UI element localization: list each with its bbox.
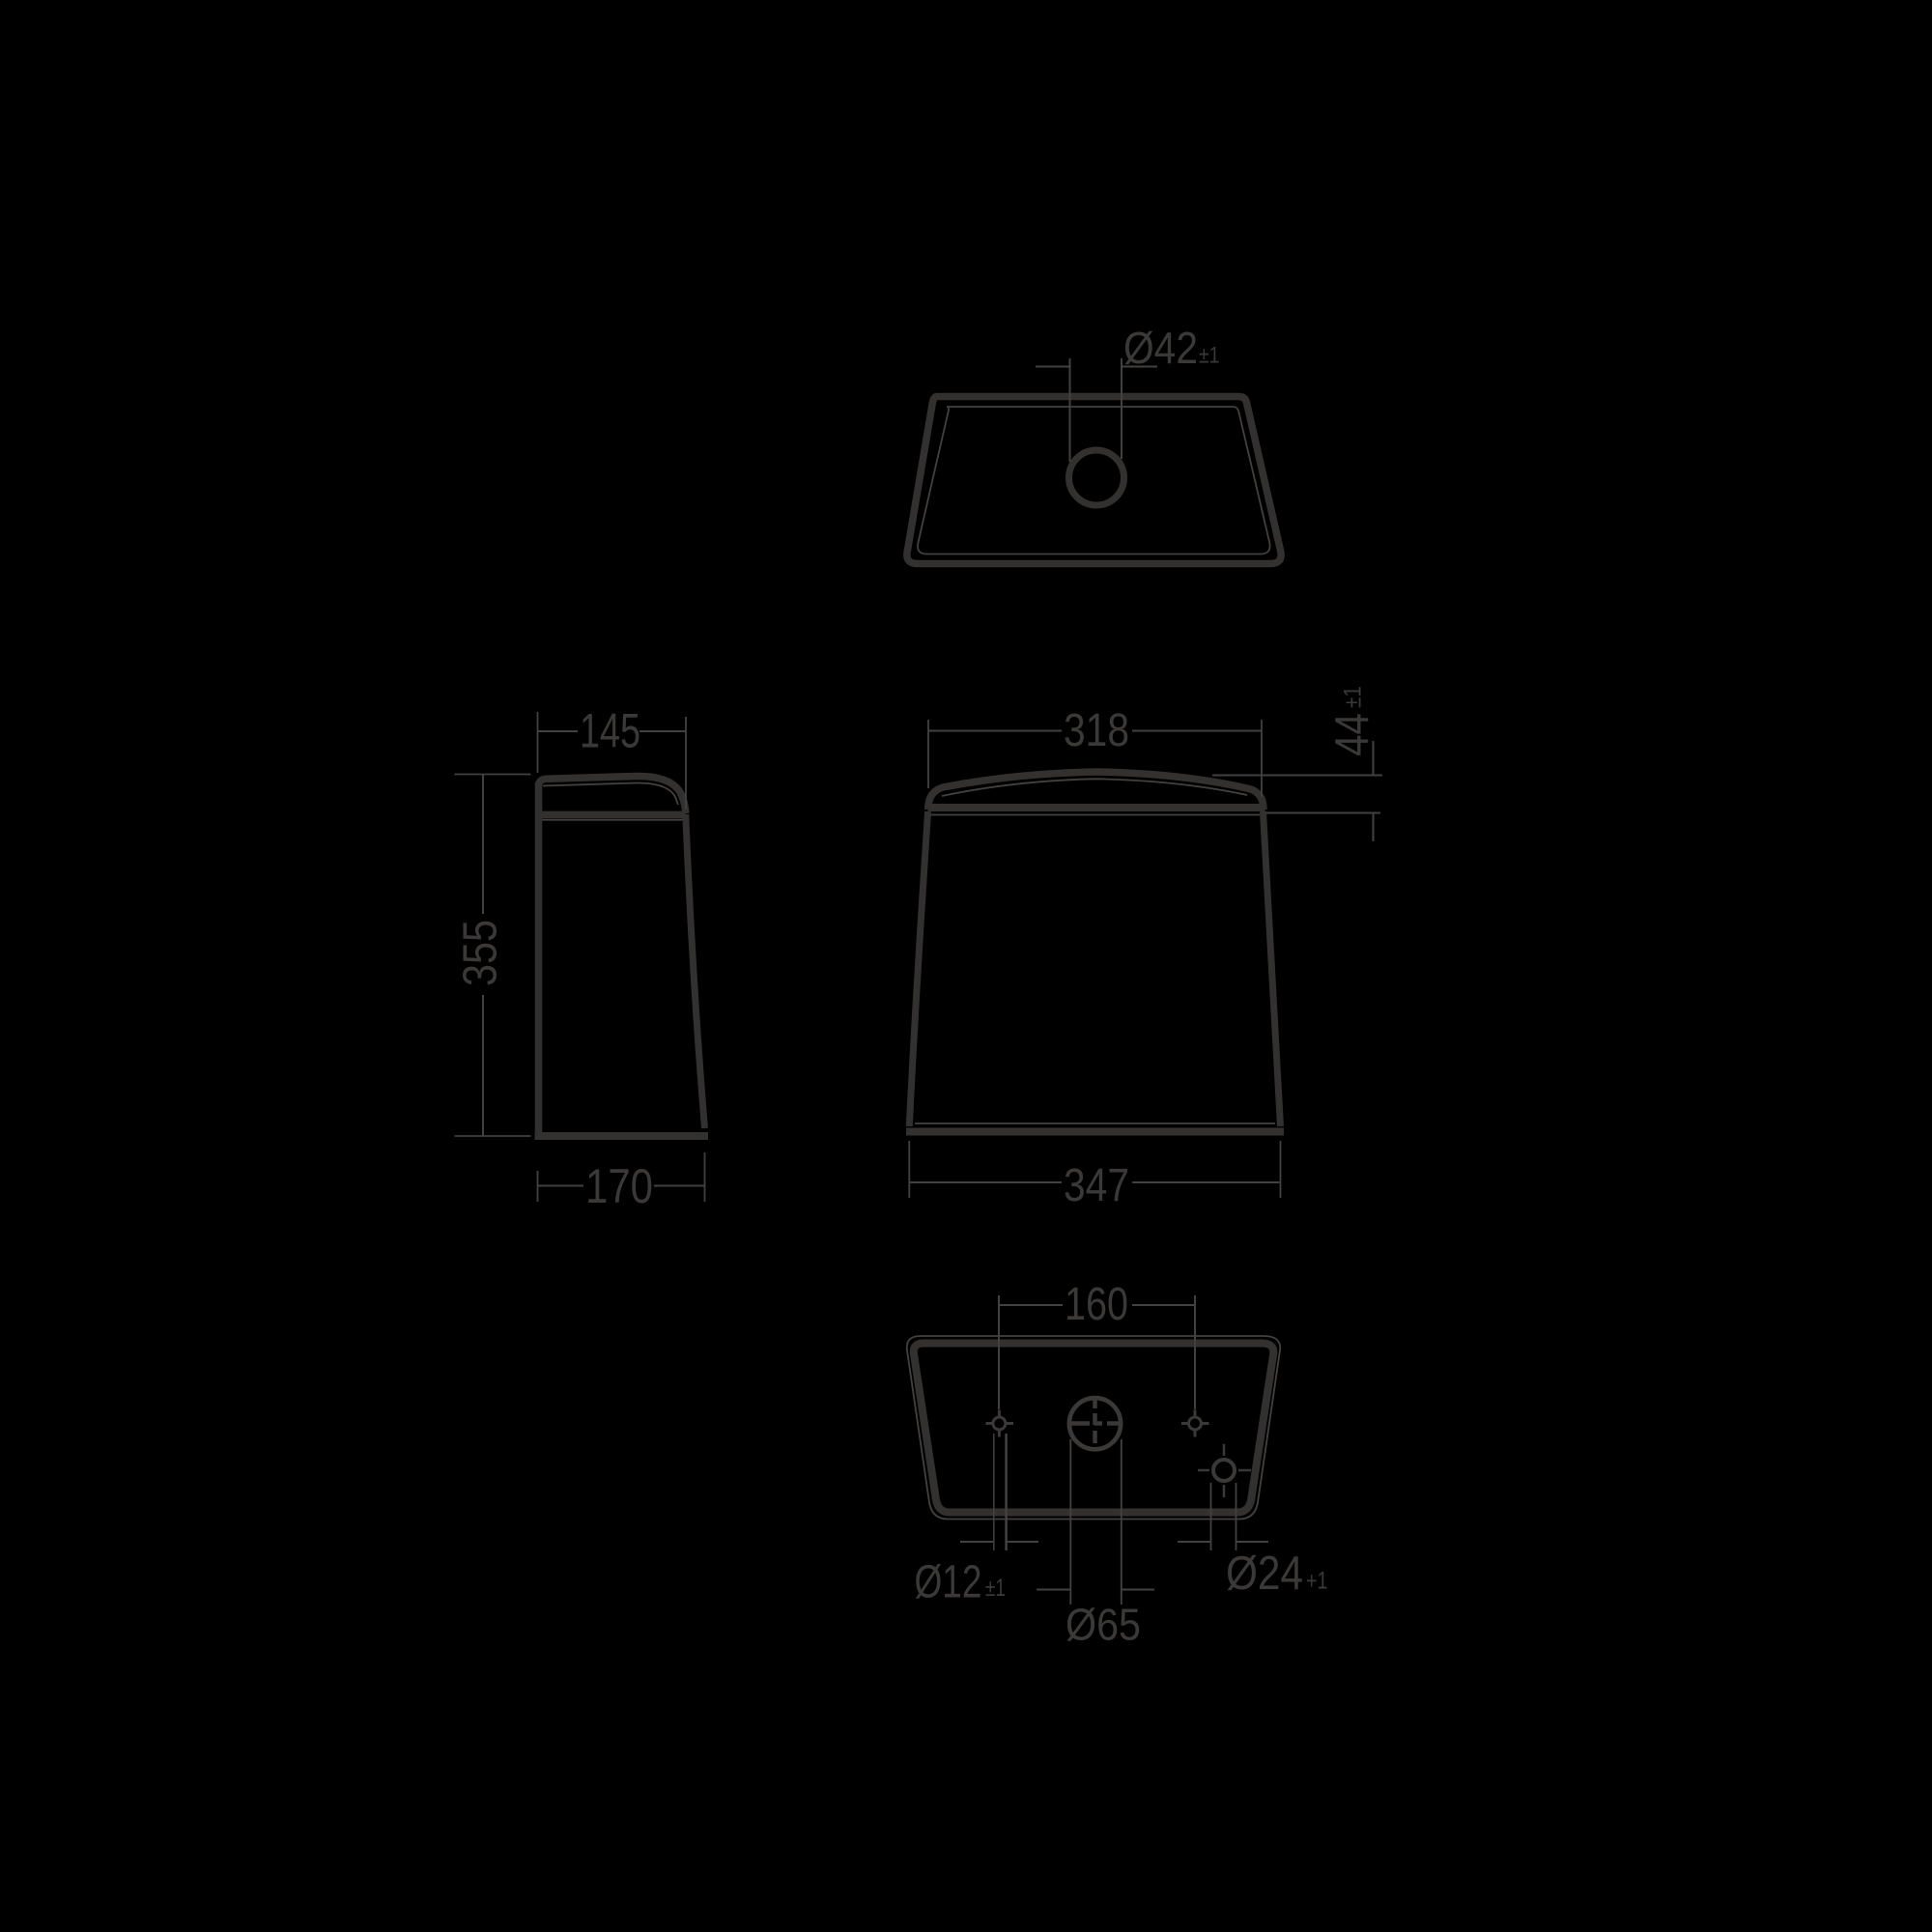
svg-text:355: 355 (455, 920, 507, 986)
svg-text:Ø65: Ø65 (1065, 1600, 1141, 1650)
svg-text:170: 170 (585, 1159, 653, 1213)
svg-text:Ø12: Ø12 (915, 1557, 982, 1608)
svg-text:Ø24: Ø24 (1226, 1548, 1303, 1600)
svg-text:160: 160 (1065, 1279, 1128, 1330)
svg-text:44: 44 (1326, 713, 1378, 756)
svg-text:318: 318 (1064, 705, 1129, 756)
svg-text:347: 347 (1064, 1160, 1129, 1211)
svg-text:Ø42: Ø42 (1123, 323, 1198, 373)
svg-text:±1: ±1 (985, 1575, 1006, 1602)
svg-text:+1: +1 (1306, 1568, 1328, 1595)
svg-text:±1: ±1 (1340, 686, 1367, 708)
svg-text:±1: ±1 (1199, 343, 1220, 369)
svg-text:145: 145 (580, 704, 640, 758)
